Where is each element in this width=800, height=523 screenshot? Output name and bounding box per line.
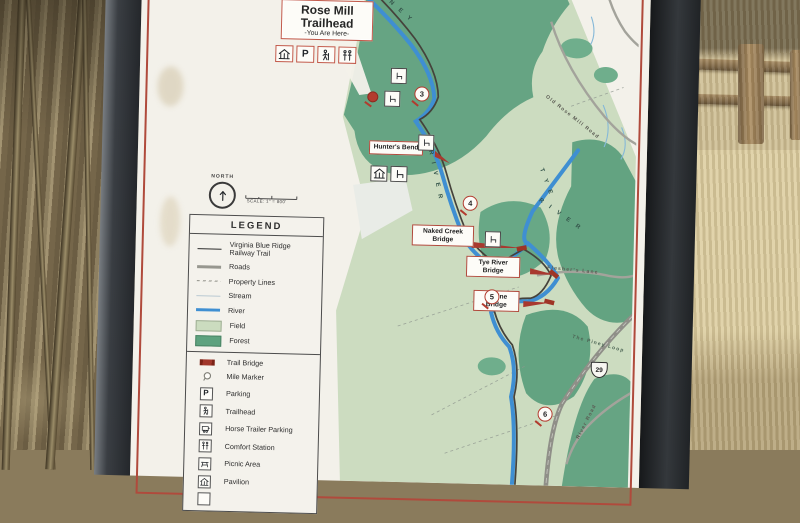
property-lines-swatch <box>197 276 221 287</box>
legend-row: Field <box>196 320 315 334</box>
legend-row: Mile Marker <box>194 371 313 385</box>
scale-text: SCALE: 1" = 800' <box>247 198 287 204</box>
north-label: NORTH <box>211 173 234 180</box>
legend-row: Roads <box>197 261 316 274</box>
hunters-bend-amenities <box>370 165 407 182</box>
trail-bridge-icon <box>199 359 214 365</box>
fence-post <box>790 50 800 140</box>
tree-trunk <box>82 0 95 470</box>
pavilion-icon <box>197 475 210 488</box>
legend-row: Virginia Blue Ridge Railway Trail <box>197 240 316 259</box>
legend-row: PParking <box>194 387 313 403</box>
legend-item-label: Trailhead <box>225 407 255 416</box>
pavilion-icon <box>370 165 387 181</box>
sign-panel: Rose Mill Trailhead -You Are Here- P NOR… <box>130 0 651 488</box>
legend-row: Horse Trailer Parking <box>193 422 312 438</box>
bench-icon <box>384 91 400 107</box>
river-swatch <box>196 305 220 316</box>
legend-item-label: Horse Trailer Parking <box>225 425 293 435</box>
picnic-area-icon <box>198 457 211 470</box>
trailhead-amenity-icons: P <box>275 45 356 64</box>
legend-item-label: Trail Bridge <box>227 359 264 368</box>
bench-icon <box>418 134 434 150</box>
legend-row: Picnic Area <box>192 457 311 473</box>
legend-item-label: Stream <box>228 292 251 301</box>
horse-trailer-icon <box>198 422 211 435</box>
legend-box: LEGEND Virginia Blue Ridge Railway Trail… <box>182 214 324 514</box>
naked-creek-bridge-label: Naked Creek Bridge <box>412 224 474 247</box>
legend-item-label: Field <box>230 322 246 331</box>
legend-item-label: Picnic Area <box>224 460 260 469</box>
legend-item-label: Parking <box>226 390 251 399</box>
legend-row: Trailhead <box>193 404 312 420</box>
bench-icon <box>390 166 407 182</box>
mile-marker-icon <box>194 371 218 383</box>
legend-row: Forest <box>195 335 314 349</box>
hunters-bend-label: Hunter's Bend <box>369 140 423 155</box>
fence-post <box>738 44 764 144</box>
legend-row: Property Lines <box>197 276 316 289</box>
railway-trail-swatch <box>197 243 221 254</box>
legend-item-label: Pavilion <box>224 478 249 487</box>
parking-icon: P <box>199 387 212 400</box>
bench-icon <box>197 492 210 505</box>
legend-item-label: Virginia Blue Ridge Railway Trail <box>229 241 316 260</box>
legend-row-clipped <box>191 492 310 508</box>
legend-row: Trail Bridge <box>195 358 314 369</box>
legend-item-label: Comfort Station <box>225 443 275 452</box>
legend-divider <box>187 351 320 355</box>
tree-trunk <box>2 0 27 470</box>
legend-row: Comfort Station <box>193 439 312 455</box>
trailhead-hiker-icon <box>317 46 335 63</box>
trail-sign: Rose Mill Trailhead -You Are Here- P NOR… <box>94 0 701 489</box>
trailhead-title-box: Rose Mill Trailhead -You Are Here- <box>281 0 374 42</box>
bench-icon <box>485 231 501 247</box>
legend-item-label: Mile Marker <box>226 373 264 382</box>
trailhead-hiker-icon <box>199 404 212 417</box>
legend-item-label: River <box>228 307 245 316</box>
roads-swatch <box>197 261 221 272</box>
tree-trunk <box>45 0 87 470</box>
legend-row: Stream <box>196 290 315 303</box>
you-are-here-label: -You Are Here- <box>283 29 371 38</box>
legend-item-label: Forest <box>229 337 250 346</box>
legend-item-label: Property Lines <box>229 278 276 287</box>
pavilion-icon <box>275 45 293 62</box>
parking-icon: P <box>296 45 314 62</box>
legend-row: River <box>196 305 315 318</box>
field-swatch <box>196 320 222 332</box>
stream-swatch <box>196 290 220 301</box>
bench-icon <box>391 68 407 84</box>
restrooms-icon <box>338 47 356 64</box>
comfort-station-icon <box>198 440 211 453</box>
tree-trunk <box>25 0 55 470</box>
legend-item-label: Roads <box>229 263 250 272</box>
tye-river-bridge-label: Tye River Bridge <box>466 256 521 278</box>
legend-row: Pavilion <box>192 475 311 491</box>
forest-swatch <box>195 335 221 347</box>
trailhead-title: Rose Mill Trailhead <box>283 3 372 30</box>
